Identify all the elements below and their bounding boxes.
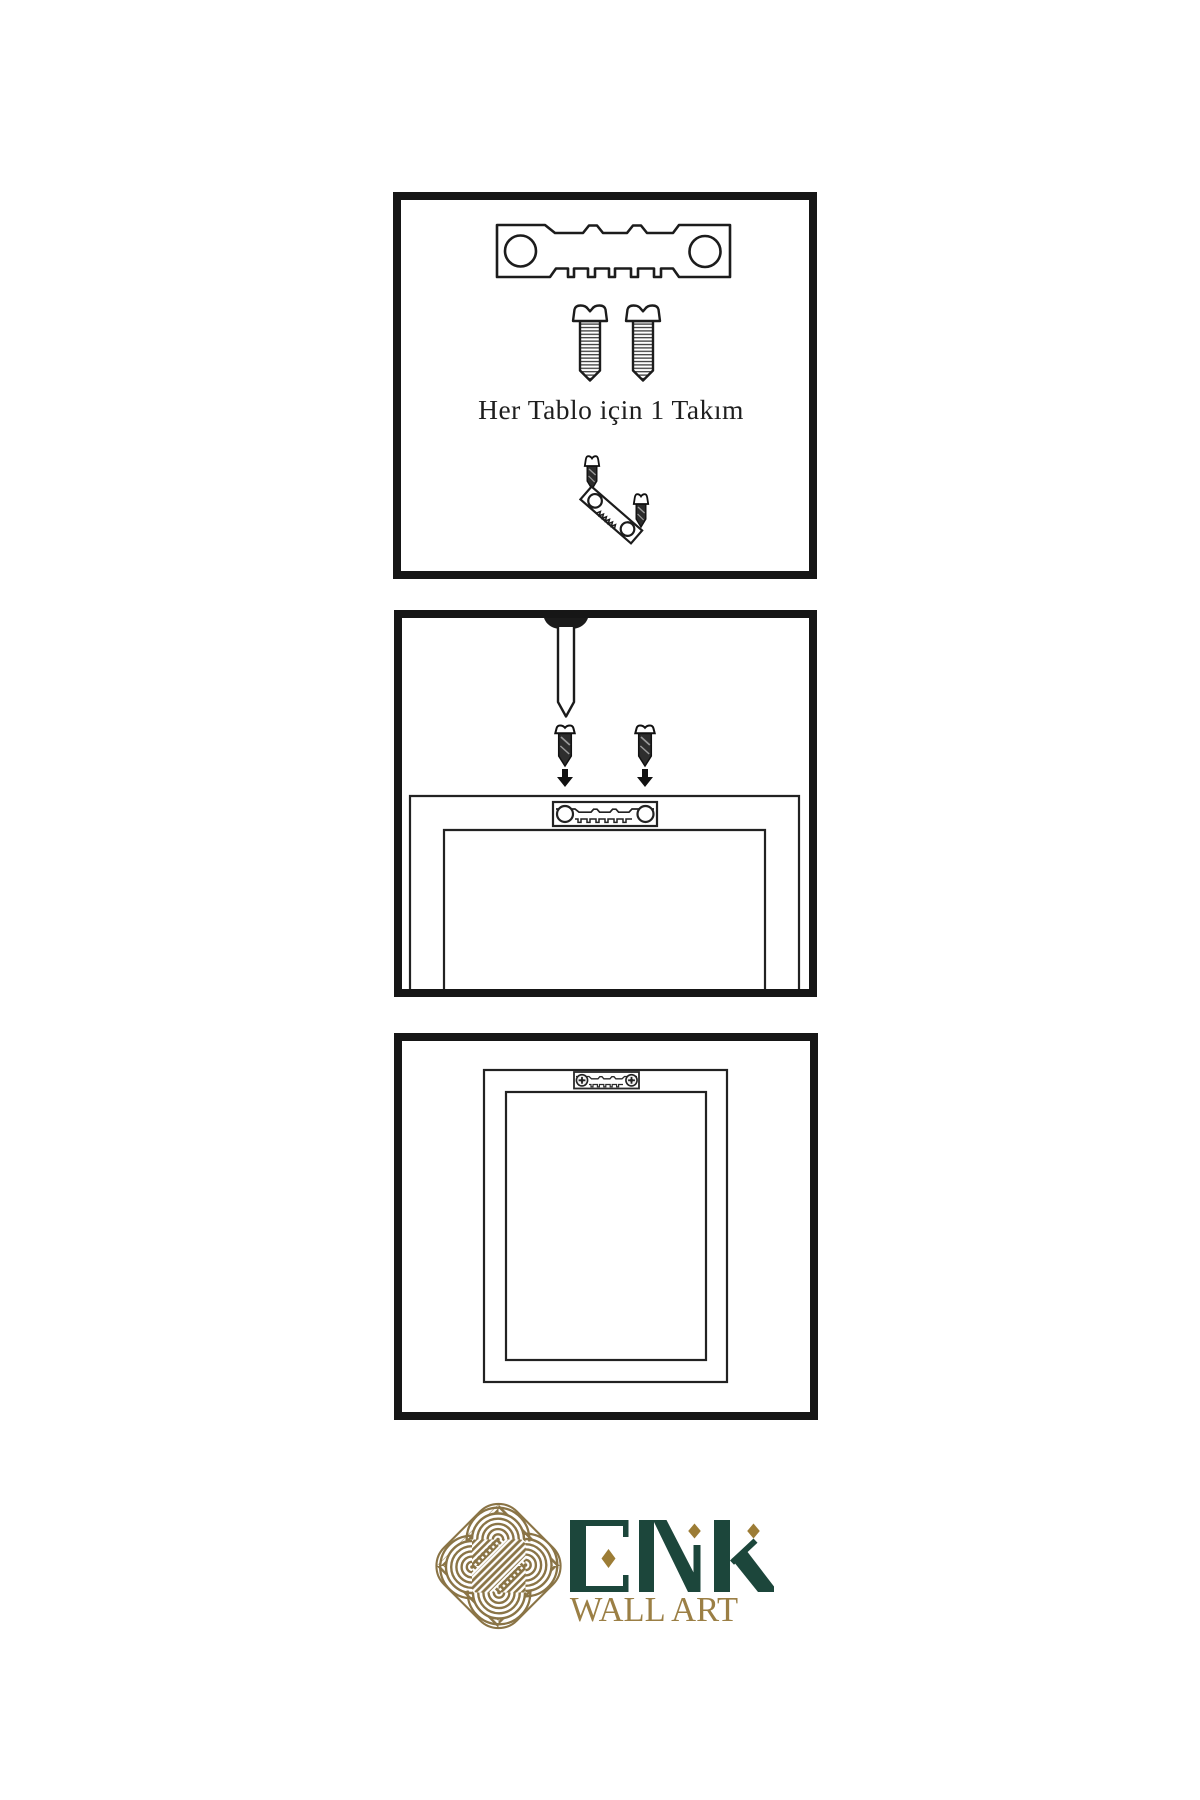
svg-text:WALL ART: WALL ART <box>570 1591 738 1629</box>
svg-text:Her Tablo için 1 Takım: Her Tablo için 1 Takım <box>478 394 744 425</box>
